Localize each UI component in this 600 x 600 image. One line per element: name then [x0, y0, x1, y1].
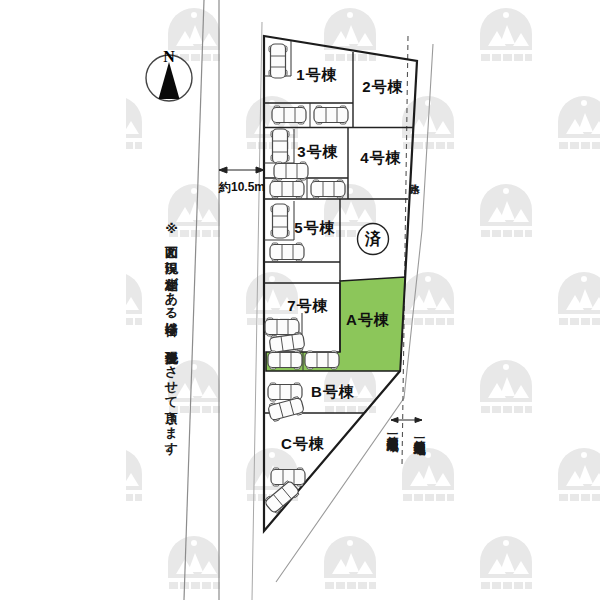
- plot-label-4: 4号棟: [360, 149, 401, 168]
- plot-label-c: C号棟: [281, 435, 325, 454]
- plot-label-3: 3号棟: [297, 143, 338, 162]
- plot-label-b: B号棟: [311, 383, 355, 402]
- waterway-label: 水路: [409, 176, 419, 202]
- car-icon: [271, 129, 289, 163]
- zoning-label-left: 第一種中高層住居専用地域: [386, 427, 398, 579]
- car-icon: [305, 351, 339, 369]
- plot-label-7: 7号棟: [287, 297, 328, 316]
- road-width-label: 約10.5m: [219, 179, 265, 196]
- car-icon: [272, 106, 306, 124]
- plot-label-5: 5号棟: [294, 219, 335, 238]
- car-icon: [268, 351, 302, 369]
- north-label: N: [163, 48, 175, 66]
- sold-badge: 済: [365, 229, 381, 250]
- plot-label-2: 2号棟: [362, 78, 403, 97]
- car-icon: [269, 44, 287, 78]
- car-icon: [265, 318, 299, 336]
- site-plan-canvas: N 約10.5m 1号棟 2号棟 3号棟 4号棟 5号棟 7号棟 A号棟 B号棟…: [0, 0, 600, 600]
- car-icon: [270, 243, 304, 261]
- car-icon: [271, 204, 289, 238]
- zoning-label-right: 第一種低層住居専用地域: [413, 431, 425, 583]
- car-icon: [311, 180, 345, 198]
- disclaimer-note: ※図面と現況に相違がある場合は、現況優先とさせて頂きます。: [165, 221, 178, 593]
- car-icon: [314, 106, 348, 124]
- plot-label-a: A号棟: [346, 311, 390, 330]
- car-icon: [270, 180, 304, 198]
- car-icon: [274, 162, 308, 180]
- plot-label-1: 1号棟: [296, 66, 337, 85]
